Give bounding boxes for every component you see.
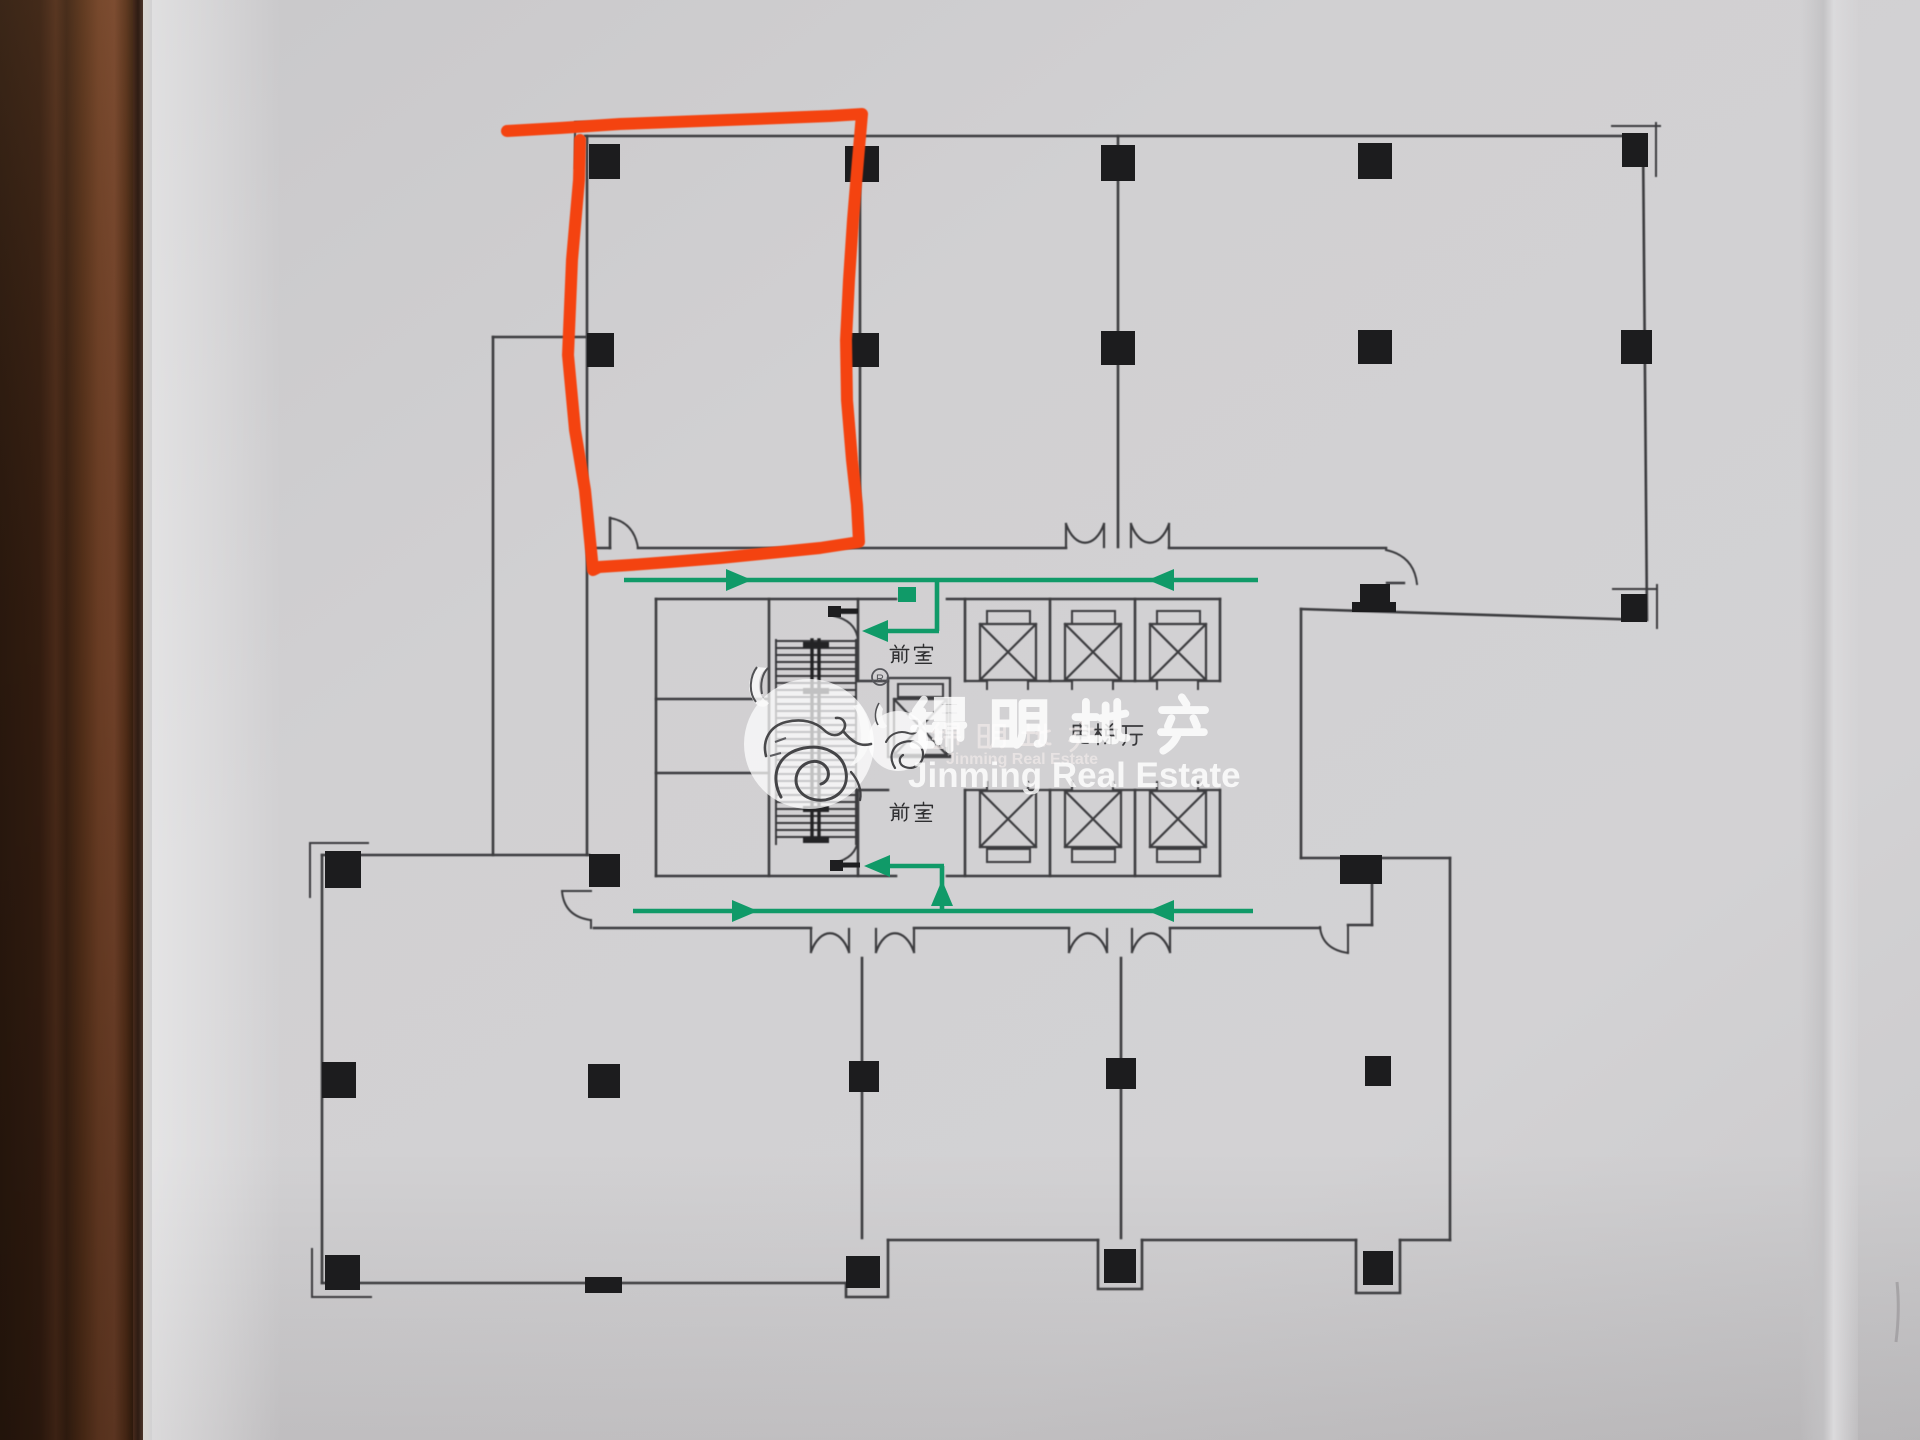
svg-text:Jinming Real Estate: Jinming Real Estate [908, 756, 1241, 795]
svg-text:R: R [876, 673, 884, 685]
